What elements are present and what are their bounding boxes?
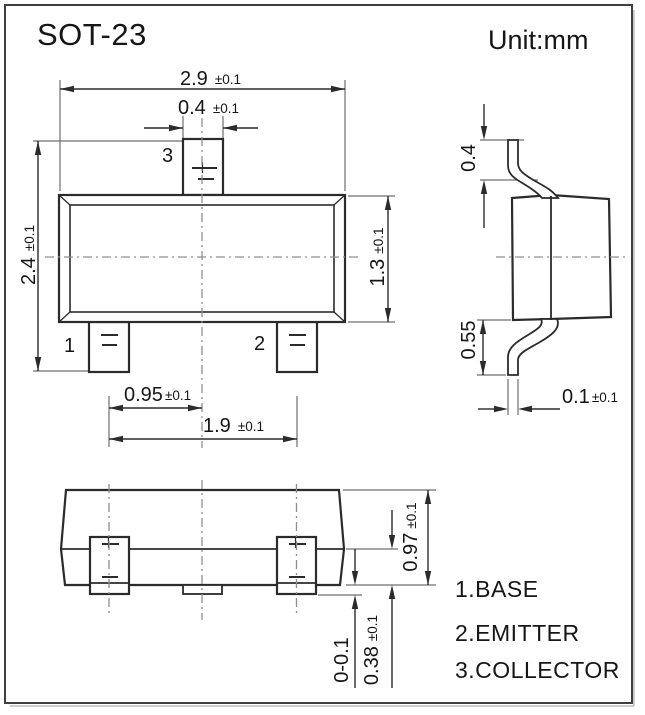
legend-base: 1.BASE [455,576,539,602]
dim-lead-pitch: 0.95±0.1 [109,384,202,411]
svg-text:0.1±0.1: 0.1±0.1 [562,386,618,408]
pin1-number-label: 1 [64,335,75,357]
unit-label: Unit:mm [488,25,589,55]
svg-text:1.9±0.1: 1.9±0.1 [203,415,264,437]
legend-emitter: 2.EMITTER [455,620,580,646]
svg-text:0-0.1: 0-0.1 [331,637,353,683]
pin2-lead-top-view [277,322,317,372]
dim-lead-span: 1.9±0.1 [109,415,297,442]
sot23-package-drawing: 2.9±0.1 0.4±0.1 2.4±0.1 1.3±0.1 [0,0,645,715]
dim-lead3-width: 0.4±0.1 [144,97,258,131]
svg-text:0.55: 0.55 [458,321,480,360]
dim-lead-top-height: 0.4 [458,104,487,228]
dim-shoulder-height: 0.38±0.1 [361,510,395,688]
dim-lead-bottom-height: 0.55 [458,320,486,375]
dim-body-length: 1.3±0.1 [367,196,391,322]
package-title: SOT-23 [37,17,147,52]
svg-text:2.4±0.1: 2.4±0.1 [18,225,40,285]
pin1-lead-top-view [89,322,129,372]
legend-collector: 3.COLLECTOR [455,657,620,683]
pin-legend: 1.BASE 2.EMITTER 3.COLLECTOR [455,576,620,683]
dim-body-height: 0.97±0.1 [400,490,431,585]
front-view: 0.97±0.1 0.38±0.1 0-0.1 [61,480,436,688]
top-view: 2.9±0.1 0.4±0.1 2.4±0.1 1.3±0.1 [18,68,395,448]
svg-text:0.95±0.1: 0.95±0.1 [124,384,191,406]
svg-text:0.38±0.1: 0.38±0.1 [361,615,383,685]
side-view: 0.4 0.55 0.1±0.1 [458,104,628,415]
pin3-number-label: 3 [162,145,173,167]
dim-lead-thickness: 0.1±0.1 [478,386,618,412]
dim-overall-length: 2.4±0.1 [18,141,41,371]
svg-text:0.4: 0.4 [458,144,480,172]
svg-text:0.4±0.1: 0.4±0.1 [178,97,239,119]
svg-text:0.97±0.1: 0.97±0.1 [400,502,422,571]
svg-text:1.3±0.1: 1.3±0.1 [367,228,389,287]
gullwing-lead-bottom [508,319,558,375]
drawing-page: 2.9±0.1 0.4±0.1 2.4±0.1 1.3±0.1 [0,0,645,715]
svg-text:2.9±0.1: 2.9±0.1 [180,68,241,90]
dim-body-width: 2.9±0.1 [60,68,345,92]
gullwing-lead-top [508,140,558,198]
pin2-number-label: 2 [254,333,265,355]
